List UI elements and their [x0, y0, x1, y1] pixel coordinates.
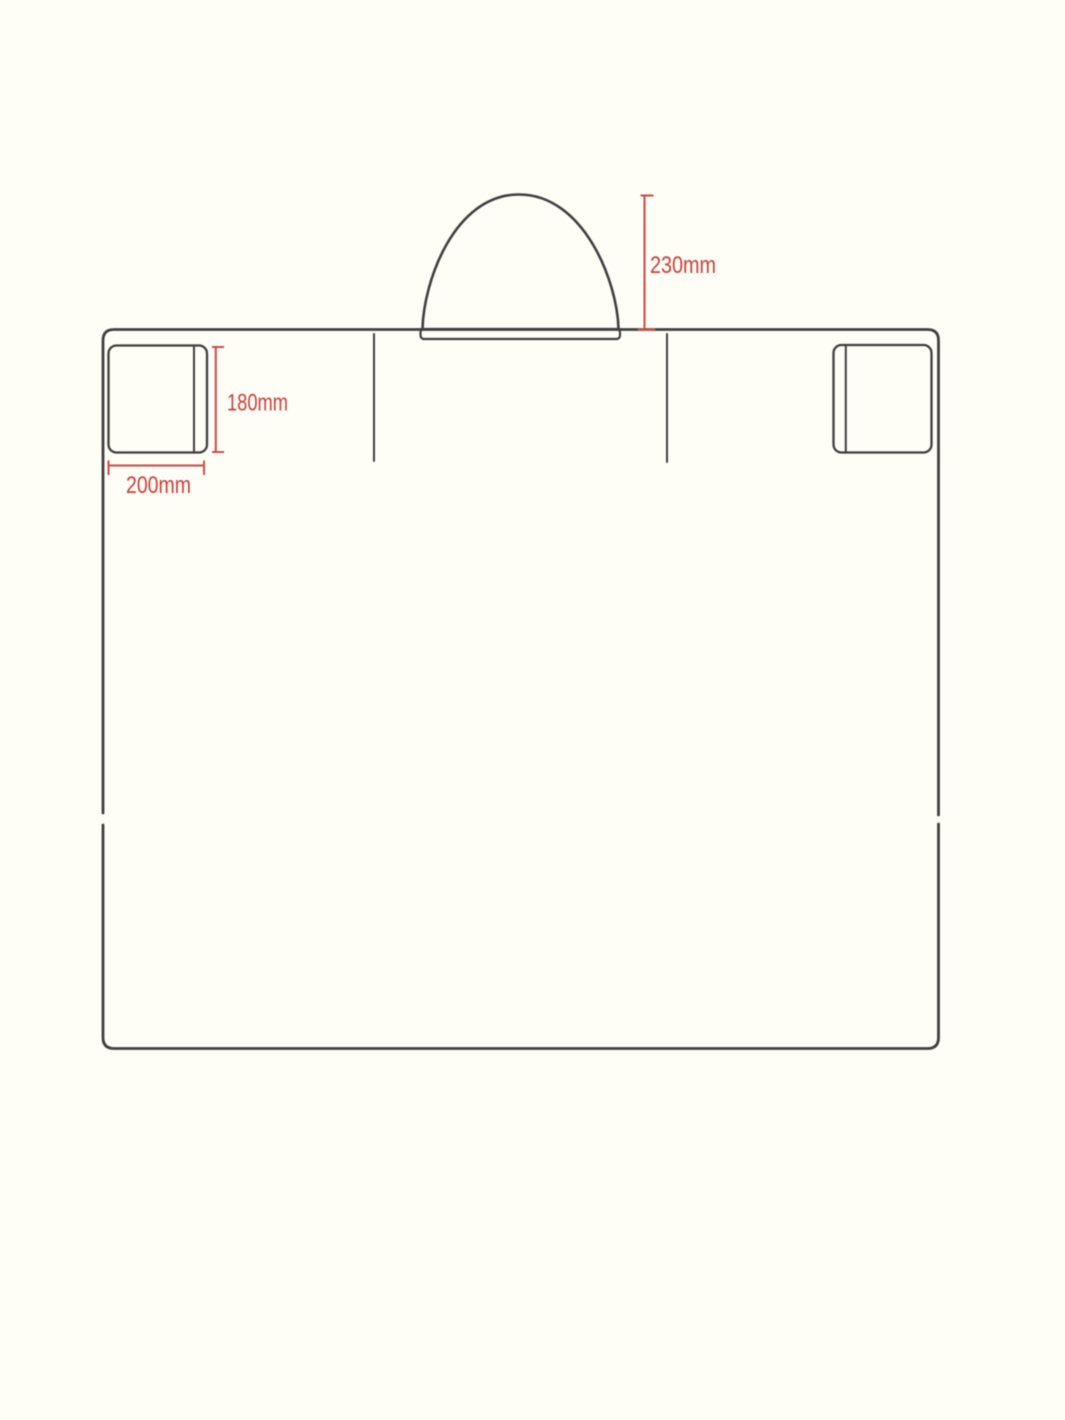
- svg-text:200mm: 200mm: [126, 472, 191, 499]
- svg-text:230mm: 230mm: [650, 252, 716, 279]
- svg-text:180mm: 180mm: [227, 390, 288, 417]
